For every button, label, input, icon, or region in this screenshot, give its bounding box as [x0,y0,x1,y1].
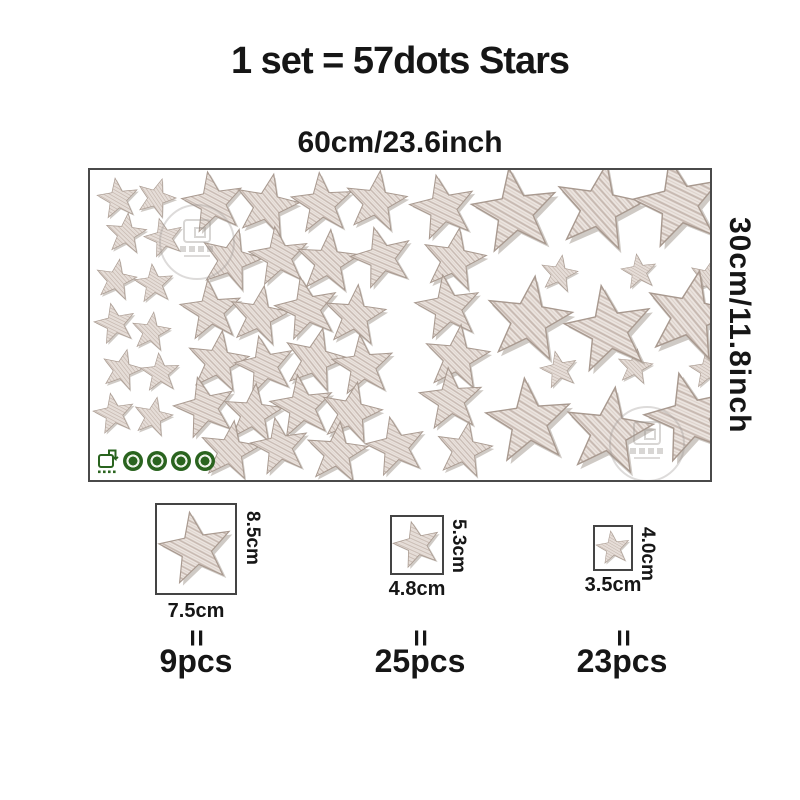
star-sticker [538,252,582,295]
star-sticker [619,251,660,290]
star-sticker [230,329,302,399]
star-sticker [132,173,182,222]
star-sticker-sample [392,517,442,573]
sticker-sheet [88,168,712,482]
cert-seal-icon [171,451,191,471]
spec-box-medium [390,515,444,575]
spec-box-small [593,525,633,571]
spec-height-label: 5.3cm [447,519,469,573]
product-infographic: 1 set = 57dots Stars 60cm/23.6inch [0,0,800,800]
piece-count: 25pcs [370,643,470,680]
size-spec-medium: 5.3cm 4.8cm = 25pcs [390,515,530,695]
star-sticker [561,381,661,478]
spec-width-label: 4.8cm [375,578,459,601]
star-field [90,170,710,480]
star-sticker [322,281,391,347]
certification-badges [97,448,215,474]
star-sticker [627,170,710,254]
star-sticker [467,170,565,257]
spec-height-label: 8.5cm [241,511,263,565]
piece-count: 23pcs [572,643,672,680]
eco-package-icon [97,448,119,474]
star-sticker [289,170,357,235]
star-sticker [411,269,487,343]
star-sticker [636,362,710,469]
star-sticker [91,299,140,347]
spec-height-label: 4.0cm [636,527,658,581]
star-sticker [361,410,433,480]
cert-seal-icon [147,451,167,471]
cert-seal-icon [123,451,143,471]
star-sticker [330,331,399,397]
star-sticker [417,365,487,432]
star-sticker-sample [157,507,235,591]
piece-count: 9pcs [146,643,246,680]
star-sticker [178,170,250,236]
sheet-height-label: 30cm/11.8inch [722,168,756,482]
spec-box-large [155,503,237,595]
size-spec-large: 8.5cm 7.5cm = 9pcs [155,503,315,693]
star-sticker [129,309,174,353]
star-sticker [130,393,177,439]
star-sticker [95,175,142,221]
star-sticker [550,170,653,256]
sheet-width-label: 60cm/23.6inch [88,126,712,160]
page-title: 1 set = 57dots Stars [0,40,800,83]
size-spec-small: 4.0cm 3.5cm = 23pcs [593,525,723,695]
star-sticker [139,351,181,392]
star-sticker [422,321,496,393]
cert-seal-icon [195,451,215,471]
spec-width-label: 3.5cm [571,574,655,597]
star-sticker [98,345,148,394]
star-sticker [93,256,141,303]
star-sticker [342,170,412,235]
star-sticker [230,170,306,242]
star-sticker [405,170,483,244]
star-sticker [483,373,579,466]
star-sticker-sample [595,527,631,569]
star-sticker [140,213,188,260]
star-sticker [178,276,247,342]
star-sticker [91,389,139,436]
star-sticker [345,219,421,293]
star-sticker [133,262,177,304]
